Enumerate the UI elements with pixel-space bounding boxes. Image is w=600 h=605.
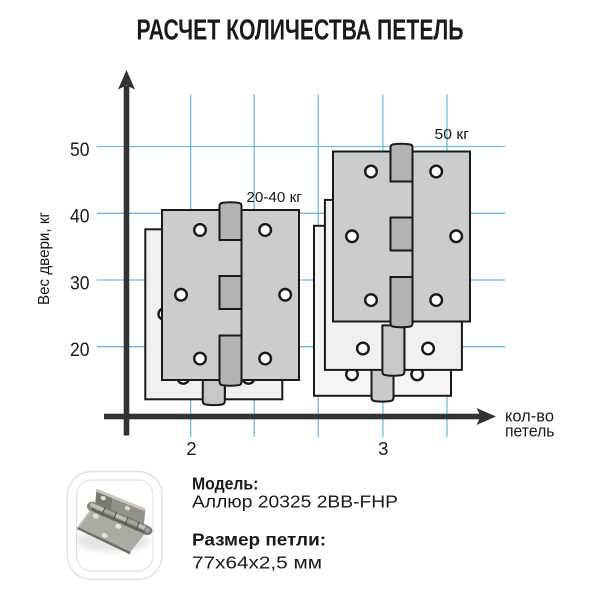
svg-text:50: 50 (70, 139, 90, 161)
svg-text:Размер петли:: Размер петли: (192, 530, 326, 550)
svg-text:30: 30 (70, 272, 90, 294)
svg-text:3: 3 (378, 438, 388, 459)
svg-text:Модель:: Модель: (192, 474, 258, 494)
svg-text:Вес двери, кг: Вес двери, кг (36, 212, 53, 305)
svg-text:20: 20 (70, 339, 90, 361)
svg-text:2: 2 (186, 438, 196, 459)
svg-text:Аллюр 20325 2BB-FHP: Аллюр 20325 2BB-FHP (192, 492, 398, 512)
svg-text:20-40 кг: 20-40 кг (246, 190, 301, 206)
svg-text:РАСЧЕТ КОЛИЧЕСТВА ПЕТЕЛЬ: РАСЧЕТ КОЛИЧЕСТВА ПЕТЕЛЬ (137, 15, 464, 47)
svg-text:петель: петель (505, 422, 555, 440)
svg-text:77х64х2,5 мм: 77х64х2,5 мм (192, 553, 322, 573)
svg-text:50 кг: 50 кг (435, 127, 470, 143)
svg-text:40: 40 (70, 206, 90, 228)
